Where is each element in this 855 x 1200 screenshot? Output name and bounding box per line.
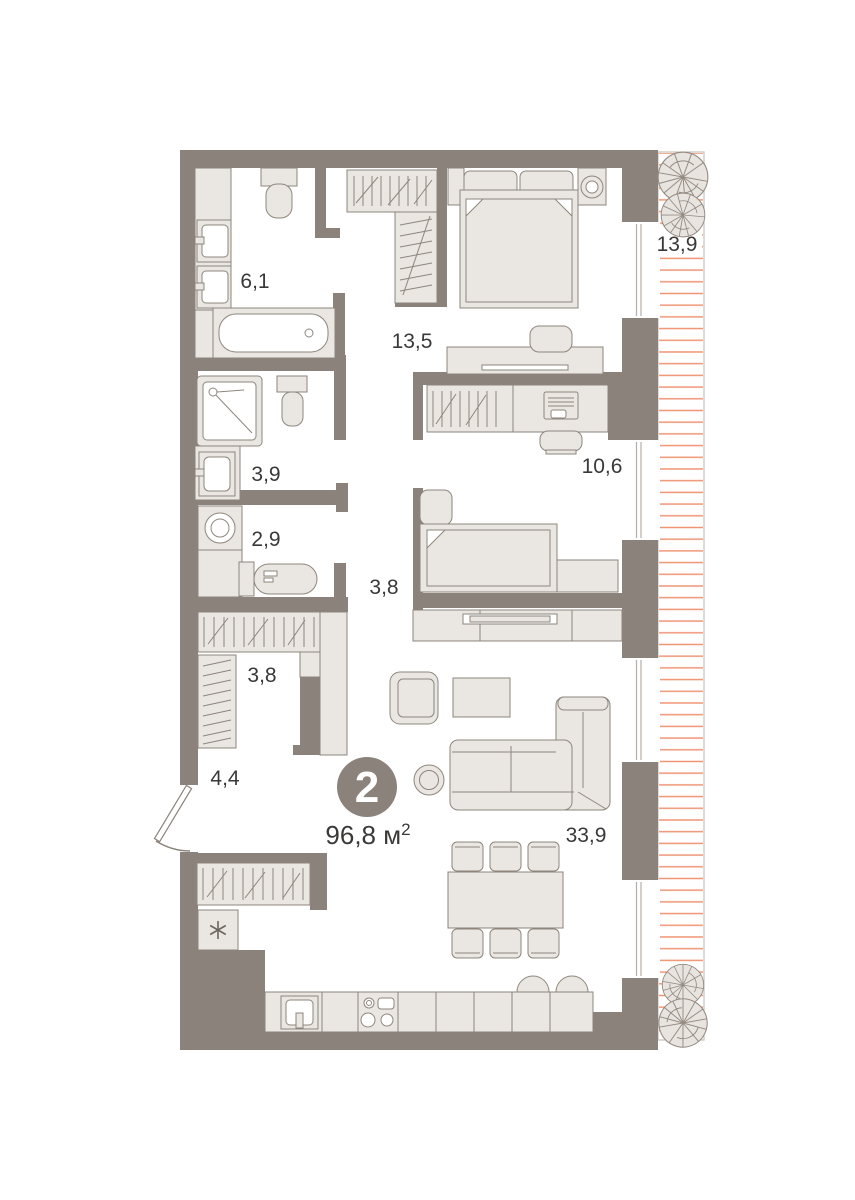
floor-plan-svg: 6,1 13,5 13,9 3,9 2,9 3,8 3,8 4,4 10,6 3…	[0, 0, 855, 1200]
toilet	[261, 168, 297, 218]
bar-stools	[517, 976, 588, 992]
room-label-corridor: 3,8	[369, 576, 398, 599]
wall-hung-toilet	[239, 562, 317, 596]
window-bedroom	[620, 222, 660, 318]
wardrobe-rod-top	[198, 612, 320, 652]
door-swing-arc	[156, 841, 190, 851]
fridge	[198, 910, 238, 950]
kitchen-sink	[281, 996, 318, 1029]
room-label-bedroom: 13,5	[392, 330, 433, 353]
room-label-bedroom-2: 10,6	[582, 455, 623, 478]
room-label-bathroom: 6,1	[240, 270, 269, 293]
sink-2	[195, 266, 231, 308]
closet-rod-horizontal	[347, 170, 437, 212]
total-area-superscript: 2	[401, 820, 410, 839]
room-label-hallway: 4,4	[210, 767, 240, 790]
shower-cabin	[197, 376, 262, 446]
bedroom-chair	[530, 326, 572, 352]
tall-cabinet	[320, 612, 347, 755]
window-living-2	[620, 880, 660, 978]
pouf	[414, 765, 444, 795]
tv-console	[413, 610, 622, 641]
room-label-living-kitchen: 33,9	[566, 824, 607, 847]
room-label-wc: 2,9	[251, 528, 280, 551]
armchair	[390, 672, 438, 724]
window-living-1	[620, 658, 660, 762]
bathroom-fixtures	[195, 168, 335, 358]
shelf	[300, 652, 320, 677]
total-area-label: 96,8 м2	[325, 820, 410, 850]
bathtub	[213, 308, 335, 358]
double-bed	[460, 171, 578, 308]
toilet	[277, 376, 307, 426]
entrance-door	[154, 785, 191, 851]
bedroom-furniture	[447, 168, 606, 374]
dining-table	[448, 872, 563, 928]
desk-chair	[540, 431, 582, 454]
dresser-desk	[447, 347, 603, 374]
total-area-value: 96,8 м	[325, 820, 401, 850]
room-label-balcony: 13,9	[657, 233, 698, 256]
bench	[557, 560, 618, 592]
door-leaf	[154, 785, 191, 841]
dining-set	[448, 842, 563, 958]
bedroom-entry-closet	[347, 170, 437, 303]
single-bed	[420, 490, 557, 592]
balcony-hatch	[659, 153, 703, 1039]
rooms-count-value: 2	[355, 763, 379, 812]
coffee-table	[453, 678, 510, 717]
living-room-furniture	[390, 610, 622, 992]
room-label-wardrobe: 3,8	[247, 664, 276, 687]
desk	[513, 385, 608, 432]
room-label-shower-room: 3,9	[251, 463, 280, 486]
plan-badge: 2 96,8 м2	[325, 757, 410, 850]
wc-counter	[198, 550, 242, 597]
floor-plan-page: 6,1 13,5 13,9 3,9 2,9 3,8 3,8 4,4 10,6 3…	[0, 0, 855, 1200]
washing-machine	[198, 506, 242, 550]
bedroom-2-furniture	[420, 385, 618, 592]
wardrobe-unit	[427, 385, 513, 432]
closet-rod-vertical	[395, 212, 437, 303]
wardrobe-rod-left	[198, 655, 236, 748]
shower-room-fixtures	[195, 376, 317, 597]
sink-1	[195, 220, 231, 262]
washbasin	[195, 446, 240, 500]
window-bedroom-2	[620, 440, 660, 540]
table-lamp	[581, 176, 603, 198]
hallway-closet	[197, 863, 310, 905]
tub-shelf	[195, 310, 213, 358]
